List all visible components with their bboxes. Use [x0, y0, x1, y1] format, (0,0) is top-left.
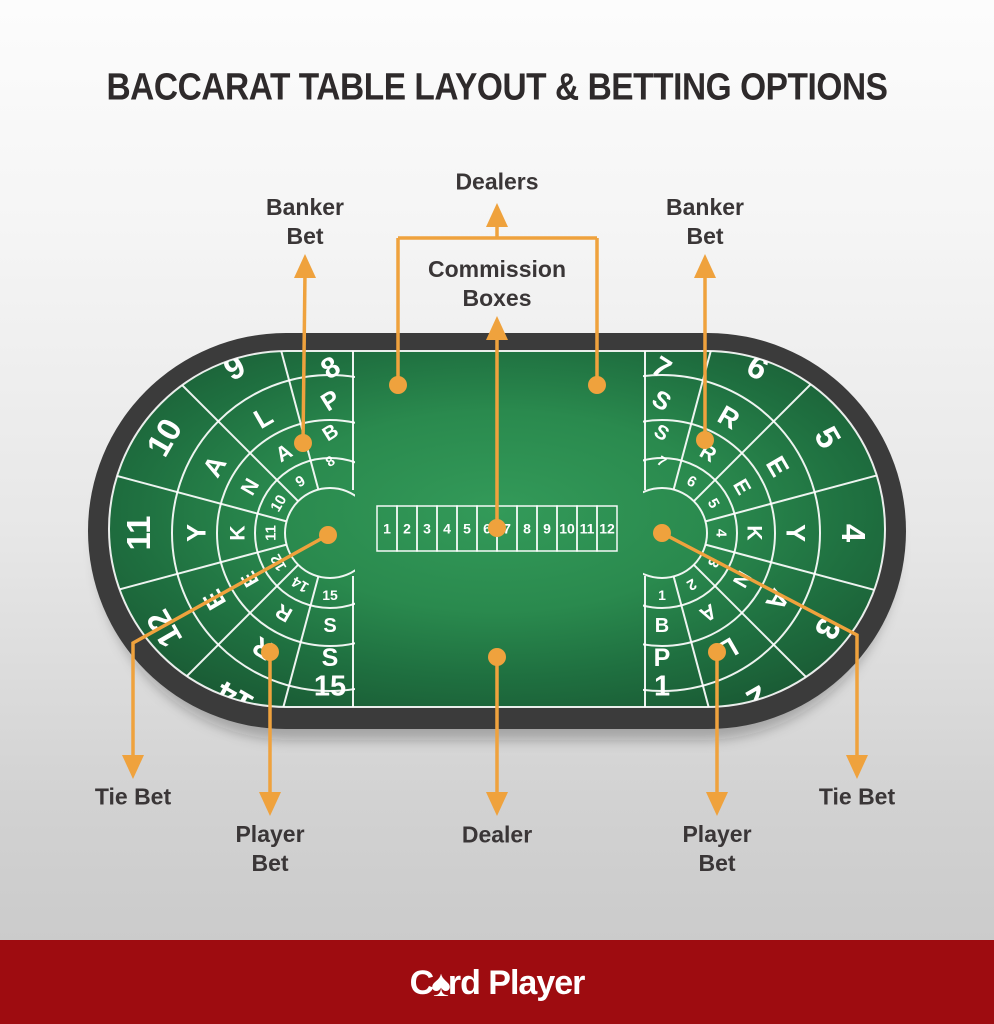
spade-icon: ♠ [431, 963, 450, 1005]
tie-number: 15 [322, 587, 338, 603]
players-letter: Y [182, 524, 212, 542]
callout-text: Banker [266, 193, 344, 222]
commission-number: 11 [580, 521, 595, 537]
commission-number: 8 [523, 521, 531, 537]
seat-number: 4 [835, 524, 872, 543]
callout-dot [653, 524, 671, 542]
callout-arrow-up [694, 254, 716, 278]
callout-arrow-down [706, 792, 728, 816]
callout-player-bet-left: Player Bet [235, 820, 304, 878]
callout-dot [389, 376, 407, 394]
callout-arrow-down [122, 755, 144, 779]
baccarat-table-graphic: 8PB89LA910AN1011YK1112EE1214RR1415SS157S… [0, 0, 994, 1024]
callout-banker-bet-right: Banker Bet [666, 193, 744, 251]
brand-text: C [410, 964, 434, 1003]
callout-dot [488, 648, 506, 666]
tie-number: 4 [713, 529, 730, 538]
callout-tie-bet-right: Tie Bet [819, 783, 895, 812]
callout-arrow-down [259, 792, 281, 816]
callout-dot [294, 434, 312, 452]
callout-dealer: Dealer [462, 821, 532, 850]
players-letter: Y [780, 524, 810, 542]
commission-number: 1 [383, 521, 391, 537]
commission-number: 2 [403, 521, 411, 537]
callout-dot [588, 376, 606, 394]
footer-bar: C ♠ rd Player [0, 940, 994, 1024]
bankers-letter: S [323, 615, 336, 637]
bankers-letter: K [742, 525, 765, 540]
callout-arrow-up [294, 254, 316, 278]
callout-tie-bet-left: Tie Bet [95, 783, 171, 812]
seat-number: 1 [654, 670, 670, 702]
callout-text: Tie Bet [95, 783, 171, 812]
callout-text: Bet [666, 222, 744, 251]
callout-text: Banker [666, 193, 744, 222]
commission-number: 10 [559, 521, 575, 537]
bankers-letter: K [227, 525, 250, 540]
commission-number: 3 [423, 521, 431, 537]
callout-text: Player [235, 820, 304, 849]
callout-dot [488, 519, 506, 537]
seat-number: 11 [120, 516, 157, 551]
callout-dot [319, 526, 337, 544]
callout-arrow-down [846, 755, 868, 779]
callout-player-bet-right: Player Bet [682, 820, 751, 878]
callout-dot [696, 431, 714, 449]
callout-line [303, 272, 305, 443]
callout-dot [261, 643, 279, 661]
callout-text: Bet [235, 849, 304, 878]
commission-number: 4 [443, 521, 451, 537]
callout-text: Bet [682, 849, 751, 878]
callout-commission-boxes: Commission Boxes [428, 255, 566, 313]
players-letter: S [322, 644, 339, 672]
commission-number: 9 [543, 521, 551, 537]
callout-text: Dealer [462, 821, 532, 850]
callout-banker-bet-left: Banker Bet [266, 193, 344, 251]
brand-text: rd Player [448, 964, 585, 1003]
callout-arrow-up [486, 203, 508, 227]
seat-number: 15 [314, 670, 346, 702]
bankers-letter: B [655, 615, 669, 637]
callout-arrow-up [486, 316, 508, 340]
callout-text: Tie Bet [819, 783, 895, 812]
callout-dot [708, 643, 726, 661]
commission-number: 12 [599, 521, 615, 537]
callout-dealers: Dealers [455, 168, 538, 197]
callout-text: Boxes [428, 284, 566, 313]
tie-number: 11 [262, 525, 279, 541]
callout-text: Bet [266, 222, 344, 251]
callout-text: Player [682, 820, 751, 849]
infographic-canvas: BACCARAT TABLE LAYOUT & BETTING OPTIONS … [0, 0, 994, 1024]
callout-arrow-down [486, 792, 508, 816]
callout-text: Commission [428, 255, 566, 284]
callout-text: Dealers [455, 168, 538, 197]
commission-number: 5 [463, 521, 471, 537]
players-letter: P [654, 644, 671, 672]
tie-number: 1 [658, 587, 666, 603]
brand-logo: C ♠ rd Player [410, 961, 585, 1003]
